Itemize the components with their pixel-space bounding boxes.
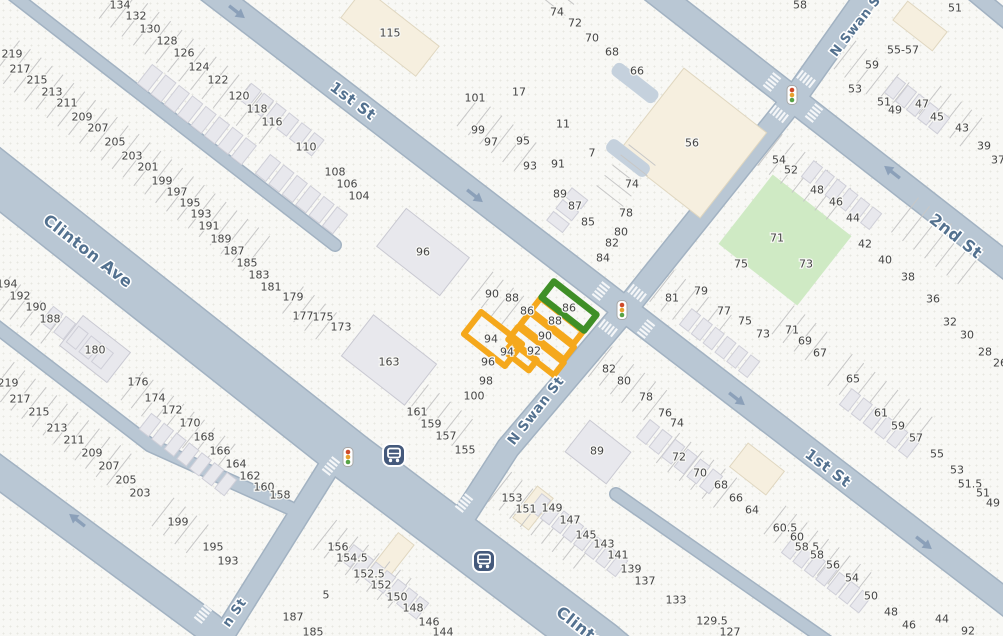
bus-stop-badge <box>473 550 495 572</box>
house-number-label: 148 <box>403 602 424 615</box>
house-number-label: 188 <box>40 313 61 326</box>
house-number-label: 32 <box>943 316 957 329</box>
bus-wheel <box>479 565 482 568</box>
traffic-light-green <box>790 98 795 103</box>
house-number-label: 36 <box>926 293 940 306</box>
house-number-label: 118 <box>247 103 268 116</box>
house-number-label: 64 <box>745 504 759 517</box>
house-number-label: 104 <box>349 190 370 203</box>
highlighted-house-number-label: 94 <box>484 333 498 346</box>
bus-wheel <box>396 459 399 462</box>
house-number-label: 47 <box>915 98 929 111</box>
house-number-label: 56 <box>685 137 699 150</box>
house-number-label: 98 <box>479 375 493 388</box>
house-number-label: 163 <box>379 356 400 369</box>
house-number-label: 205 <box>116 474 137 487</box>
house-number-label: 172 <box>162 404 183 417</box>
house-number-label: 158 <box>270 489 291 502</box>
house-number-label: 89 <box>590 445 604 458</box>
house-number-label: 28 <box>978 346 992 359</box>
house-number-label: 170 <box>180 417 201 430</box>
house-number-label: 187 <box>283 611 304 624</box>
street-name-label: N Swan St <box>504 374 567 449</box>
traffic-light-red <box>620 303 625 308</box>
house-number-label: 87 <box>568 200 582 213</box>
house-number-label: 127 <box>720 626 741 636</box>
house-number-label: 86 <box>520 305 534 318</box>
house-number-label: 58 <box>810 549 824 562</box>
house-number-label: 66 <box>630 65 644 78</box>
house-number-label: 75 <box>734 258 748 271</box>
house-number-label: 209 <box>82 447 103 460</box>
bus-stop-icon <box>473 550 495 572</box>
house-number-label: 44 <box>846 212 860 225</box>
house-number-label: 71 <box>770 232 784 245</box>
house-number-label: 85 <box>581 216 595 229</box>
house-number-label: 205 <box>105 136 126 149</box>
house-number-label: 176 <box>128 376 149 389</box>
traffic-light-icon <box>343 448 353 467</box>
house-number-label: 65 <box>846 373 860 386</box>
bus-wheel <box>389 459 392 462</box>
house-number-label: 37 <box>991 154 1003 167</box>
house-number-label: 84 <box>596 252 610 265</box>
house-number-label: 90 <box>485 288 499 301</box>
house-number-label: 173 <box>331 321 352 334</box>
house-number-label: 154.5 <box>336 552 368 565</box>
house-number-label: 50 <box>864 590 878 603</box>
house-number-label: 75 <box>738 315 752 328</box>
house-number-label: 55 <box>930 448 944 461</box>
house-number-label: 82 <box>605 237 619 250</box>
house-number-label: 39 <box>977 140 991 153</box>
house-number-label: 49 <box>986 497 1000 510</box>
house-number-label: 17 <box>512 86 526 99</box>
house-number-label: 66 <box>729 492 743 505</box>
house-number-label: 203 <box>130 487 151 500</box>
house-number-label: 191 <box>199 220 220 233</box>
house-number-label: 51 <box>948 2 962 15</box>
house-number-label: 77 <box>717 305 731 318</box>
house-number-label: 46 <box>829 196 843 209</box>
house-number-label: 59 <box>865 59 879 72</box>
map-viewport[interactable]: 1st St1st St2nd StN Swan StN Swan StClin… <box>0 0 1003 636</box>
house-number-label: 38 <box>901 271 915 284</box>
house-number-label: 147 <box>560 514 581 527</box>
house-number-label: 89 <box>553 188 567 201</box>
house-number-label: 195 <box>203 541 224 554</box>
house-number-label: 141 <box>608 549 629 562</box>
house-number-label: 30 <box>960 329 974 342</box>
house-number-label: 100 <box>464 390 485 403</box>
house-number-label: 211 <box>64 434 85 447</box>
house-number-label: 70 <box>693 467 707 480</box>
house-number-label: 79 <box>694 285 708 298</box>
traffic-light-yellow <box>790 93 795 98</box>
house-number-label: 55-57 <box>887 44 919 57</box>
house-number-label: 81 <box>665 292 679 305</box>
traffic-light-yellow <box>346 455 351 460</box>
house-number-label: 70 <box>585 32 599 45</box>
house-number-label: 96 <box>481 356 495 369</box>
house-number-label: 40 <box>878 254 892 267</box>
house-number-label: 73 <box>756 328 770 341</box>
highlighted-house-number-label: 90 <box>538 330 552 343</box>
house-number-label: 181 <box>261 281 282 294</box>
house-number-label: 68 <box>605 46 619 59</box>
house-number-label: 92 <box>961 625 975 636</box>
house-number-label: 58 <box>793 0 807 12</box>
house-number-label: 201 <box>138 161 159 174</box>
house-number-label: 46 <box>902 619 916 632</box>
house-number-label: 56 <box>826 559 840 572</box>
house-number-label: 88 <box>505 292 519 305</box>
house-number-label: 101 <box>465 92 486 105</box>
house-number-label: 177 <box>293 310 314 323</box>
house-number-label: 53 <box>950 464 964 477</box>
house-number-label: 151 <box>516 503 537 516</box>
house-number-label: 48 <box>810 184 824 197</box>
house-number-label: 219 <box>2 48 23 61</box>
bus-stop-icon <box>383 444 405 466</box>
house-number-label: 78 <box>639 391 653 404</box>
house-number-label: 73 <box>799 258 813 271</box>
house-number-label: 180 <box>85 344 106 357</box>
house-number-label: 48 <box>884 606 898 619</box>
house-number-label: 120 <box>229 90 250 103</box>
house-number-label: 97 <box>484 136 498 149</box>
house-number-label: 132 <box>126 10 147 23</box>
house-number-label: 144 <box>433 626 454 636</box>
house-number-label: 53 <box>848 83 862 96</box>
traffic-light-icon <box>617 301 627 320</box>
house-number-label: 44 <box>935 613 949 626</box>
house-number-label: 217 <box>10 393 31 406</box>
traffic-light-green <box>620 313 625 318</box>
house-number-label: 61 <box>874 407 888 420</box>
house-number-label: 68 <box>714 479 728 492</box>
house-number-label: 26 <box>993 357 1003 370</box>
house-number-label: 80 <box>617 375 631 388</box>
house-number-label: 126 <box>174 47 195 60</box>
beige-building <box>730 443 785 495</box>
house-number-label: 116 <box>262 116 283 129</box>
house-number-label: 96 <box>416 246 430 259</box>
house-number-label: 122 <box>208 74 229 87</box>
house-number-label: 74 <box>625 178 639 191</box>
house-number-label: 93 <box>523 160 537 173</box>
house-number-label: 72 <box>568 17 582 30</box>
traffic-light-green <box>346 460 351 465</box>
house-number-label: 78 <box>619 207 633 220</box>
house-number-label: 43 <box>955 122 969 135</box>
parcel-line <box>845 49 867 77</box>
house-number-label: 199 <box>168 516 189 529</box>
traffic-light-yellow <box>620 308 625 313</box>
house-number-label: 185 <box>303 626 324 636</box>
house-number-label: 11 <box>556 118 570 131</box>
house-number-label: 54 <box>845 572 859 585</box>
parcel-line <box>597 186 624 207</box>
house-number-label: 94 <box>500 346 514 359</box>
house-number-label: 91 <box>551 158 565 171</box>
house-number-label: 124 <box>189 61 210 74</box>
house-number-label: 137 <box>635 575 656 588</box>
house-number-label: 207 <box>99 460 120 473</box>
house-number-label: 72 <box>672 451 686 464</box>
house-number-label: 74 <box>670 417 684 430</box>
house-number-label: 211 <box>57 97 78 110</box>
bus-stop-badge <box>383 444 405 466</box>
house-number-label: 155 <box>455 444 476 457</box>
house-number-label: 219 <box>0 377 19 390</box>
house-number-label: 71 <box>785 324 799 337</box>
house-number-label: 49 <box>888 104 902 117</box>
house-number-label: 7 <box>589 147 596 160</box>
house-number-label: 168 <box>194 431 215 444</box>
house-number-label: 115 <box>380 27 401 40</box>
house-number-label: 179 <box>283 291 304 304</box>
traffic-light-icon <box>787 86 797 105</box>
house-number-label: 45 <box>930 111 944 124</box>
house-number-label: 5 <box>323 589 330 602</box>
house-number-label: 207 <box>88 122 109 135</box>
house-number-label: 67 <box>813 347 827 360</box>
house-number-label: 215 <box>29 406 50 419</box>
house-number-label: 82 <box>602 363 616 376</box>
house-number-label: 42 <box>858 238 872 251</box>
highlighted-house-number-label: 86 <box>562 302 576 315</box>
traffic-light-red <box>790 88 795 93</box>
house-number-label: 57 <box>909 432 923 445</box>
house-number-label: 157 <box>436 430 457 443</box>
house-number-label: 95 <box>516 135 530 148</box>
map-canvas[interactable]: 1st St1st St2nd StN Swan StN Swan StClin… <box>0 0 1003 636</box>
traffic-light-red <box>346 450 351 455</box>
house-number-label: 59 <box>891 420 905 433</box>
house-number-label: 99 <box>471 124 485 137</box>
house-number-label: 74 <box>550 6 564 19</box>
house-number-label: 110 <box>296 141 317 154</box>
bus-wheel <box>486 565 489 568</box>
highlighted-house-number-label: 92 <box>527 345 541 358</box>
house-number-label: 133 <box>666 594 687 607</box>
house-number-label: 166 <box>210 445 231 458</box>
house-number-label: 193 <box>218 555 239 568</box>
parcel-line <box>547 0 574 4</box>
house-number-label: 69 <box>798 335 812 348</box>
house-number-label: 52 <box>784 164 798 177</box>
highlighted-house-number-label: 88 <box>548 315 562 328</box>
